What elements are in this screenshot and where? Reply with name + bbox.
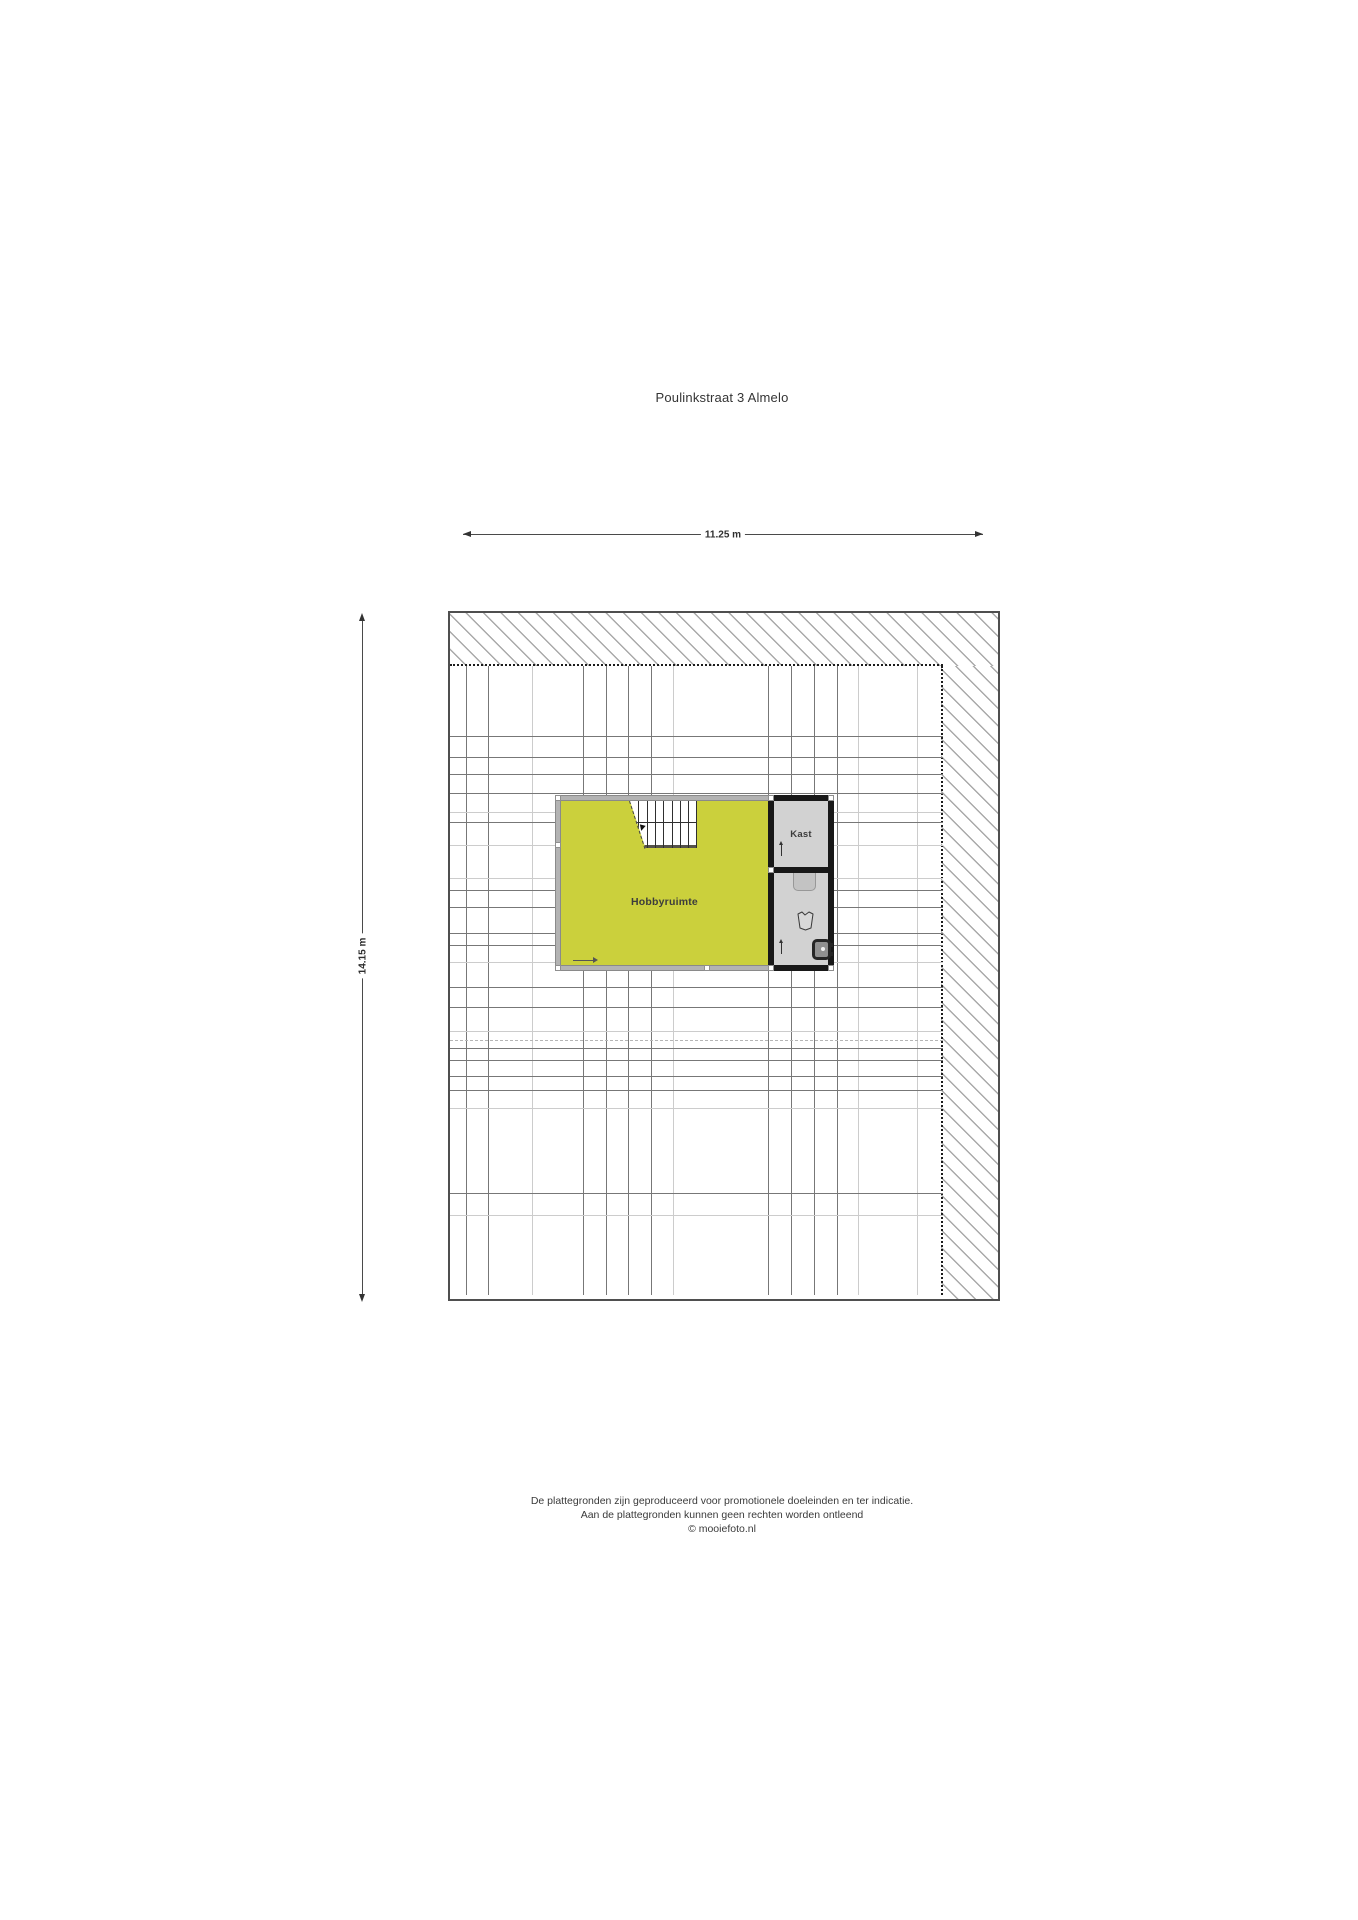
footer-copyright: © mooiefoto.nl xyxy=(348,1522,1096,1536)
wall-node xyxy=(768,965,774,971)
grid-line xyxy=(651,666,652,1295)
stair-tread xyxy=(655,801,656,848)
stair-tread xyxy=(663,801,664,848)
attic-boundary-dotted-top xyxy=(450,664,943,666)
floor-plan: Hobbyruimte Kast xyxy=(448,611,1000,1301)
grid-line xyxy=(450,1031,943,1032)
grid-line xyxy=(450,1040,943,1041)
roof-hatch-right xyxy=(941,666,998,1299)
wall-node xyxy=(555,842,561,848)
wall-node xyxy=(555,965,561,971)
sink-cabinet xyxy=(793,873,816,891)
grid-line xyxy=(450,1048,943,1049)
grid-line xyxy=(791,666,792,1295)
grid-line xyxy=(450,793,943,794)
grid-line xyxy=(583,666,584,1295)
grid-line xyxy=(673,666,674,1295)
grid-line xyxy=(606,666,607,1295)
grid-line xyxy=(858,666,859,1295)
washbasin-drain xyxy=(821,947,825,951)
grid-line xyxy=(450,1090,943,1091)
grid-line xyxy=(628,666,629,1295)
stair-right-edge xyxy=(696,801,697,848)
page-title: Poulinkstraat 3 Almelo xyxy=(448,390,996,405)
stair-tread xyxy=(680,801,681,848)
grid-line xyxy=(917,666,918,1295)
dimension-arrow-right-icon xyxy=(975,531,983,537)
grid-line xyxy=(450,1215,943,1216)
wall-node xyxy=(828,965,834,971)
grid-line xyxy=(450,1108,943,1109)
grid-line xyxy=(466,666,467,1295)
wall-node xyxy=(555,795,561,801)
wall-bottom xyxy=(555,965,774,971)
grid-line xyxy=(450,1060,943,1061)
wall-node xyxy=(828,795,834,801)
grid-line xyxy=(532,666,533,1295)
footer-line-2: Aan de plattegronden kunnen geen rechten… xyxy=(348,1508,1096,1522)
room-label-kast: Kast xyxy=(774,829,828,840)
grid-line xyxy=(450,736,943,737)
stair-tread xyxy=(647,801,648,848)
grid-line xyxy=(837,666,838,1295)
stair-tread xyxy=(688,801,689,848)
door-tick-line xyxy=(781,943,782,954)
grid-line xyxy=(450,1007,943,1008)
dimension-arrow-down-icon xyxy=(359,1294,365,1302)
entry-arrow-icon xyxy=(593,957,598,963)
door-tick-line xyxy=(781,845,782,856)
width-dimension-label: 11.25 m xyxy=(701,529,745,542)
stair-tread xyxy=(672,801,673,848)
wall-node xyxy=(704,965,710,971)
room-label-hobbyruimte: Hobbyruimte xyxy=(561,896,768,908)
grid-line xyxy=(450,1076,943,1077)
grid-line xyxy=(450,1193,943,1194)
grid-line xyxy=(450,757,943,758)
washbasin-tap xyxy=(830,943,833,947)
footer-disclaimer: De plattegronden zijn geproduceerd voor … xyxy=(348,1494,1096,1536)
wall-node xyxy=(768,795,774,801)
attic-boundary-dotted-right xyxy=(941,666,943,1295)
dimension-arrow-left-icon xyxy=(463,531,471,537)
grid-line xyxy=(814,666,815,1295)
toilet-icon xyxy=(797,911,814,931)
grid-line xyxy=(450,987,943,988)
grid-line xyxy=(488,666,489,1295)
roof-hatch-top xyxy=(450,613,998,666)
height-dimension-label: 14.15 m xyxy=(357,934,370,979)
wall-node xyxy=(768,867,774,873)
grid-line xyxy=(450,774,943,775)
footer-line-1: De plattegronden zijn geproduceerd voor … xyxy=(348,1494,1096,1508)
washbasin-tap xyxy=(830,952,833,956)
grid-line xyxy=(768,666,769,1295)
block-wall-bottom xyxy=(768,965,834,971)
entry-arrow-line xyxy=(573,960,593,961)
dimension-arrow-up-icon xyxy=(359,613,365,621)
